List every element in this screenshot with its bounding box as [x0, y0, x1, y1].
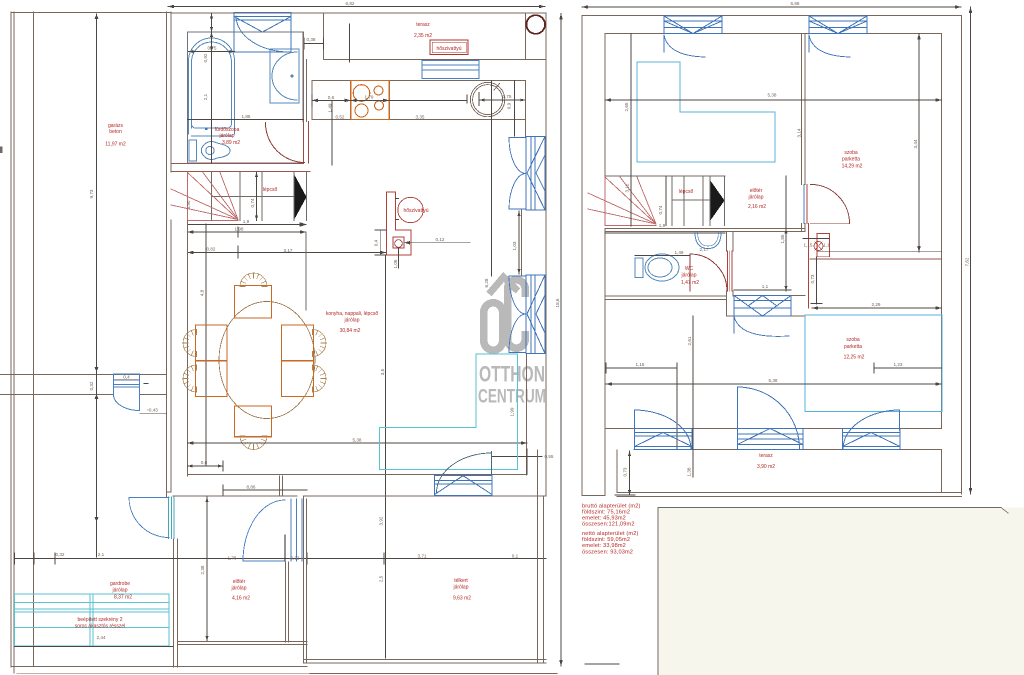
- svg-text:0,38: 0,38: [307, 37, 316, 42]
- svg-text:télkert: télkert: [454, 578, 468, 584]
- svg-text:beton: beton: [109, 129, 122, 135]
- svg-text:1,9: 1,9: [659, 223, 666, 228]
- svg-text:járólap: járólap: [452, 585, 468, 591]
- svg-text:5,38: 5,38: [353, 438, 362, 443]
- svg-text:1,85: 1,85: [242, 114, 251, 119]
- svg-text:11,97 m2: 11,97 m2: [105, 142, 126, 148]
- svg-text:2,17: 2,17: [700, 247, 709, 252]
- svg-text:1,15: 1,15: [636, 362, 645, 367]
- svg-text:1,79: 1,79: [365, 95, 374, 100]
- svg-text:emelet: 33,98m2: emelet: 33,98m2: [582, 543, 626, 549]
- svg-text:gardrobe: gardrobe: [110, 581, 130, 587]
- svg-text:0,55: 0,55: [545, 454, 554, 459]
- svg-text:beépített szekrény 2: beépített szekrény 2: [77, 617, 122, 623]
- svg-text:1,15: 1,15: [804, 243, 813, 248]
- svg-text:3,90 m2: 3,90 m2: [757, 464, 775, 470]
- svg-text:9,63 m2: 9,63 m2: [453, 596, 471, 602]
- svg-text:2,1: 2,1: [98, 552, 105, 557]
- svg-text:parketta: parketta: [844, 344, 862, 350]
- svg-text:0,1: 0,1: [512, 554, 519, 559]
- svg-text:3,89 m2: 3,89 m2: [222, 140, 240, 146]
- svg-text:4,8: 4,8: [200, 289, 205, 296]
- svg-text:1,49: 1,49: [675, 250, 684, 255]
- svg-text:1,99: 1,99: [510, 407, 515, 416]
- svg-text:12,25 m2: 12,25 m2: [844, 355, 865, 361]
- svg-text:18,6: 18,6: [555, 298, 560, 307]
- svg-text:szoba: szoba: [844, 150, 858, 156]
- svg-text:összesen:121,09m2: összesen:121,09m2: [582, 522, 635, 528]
- svg-text:2,35 m2: 2,35 m2: [414, 33, 432, 39]
- svg-text:0,4: 0,4: [374, 239, 379, 246]
- svg-text:járólap: járólap: [343, 318, 359, 324]
- svg-text:2,16 m2: 2,16 m2: [748, 204, 766, 210]
- svg-text:WC: WC: [685, 266, 694, 272]
- svg-text:soros akasztós résszel: soros akasztós résszel: [75, 624, 126, 630]
- svg-text:2,29: 2,29: [872, 302, 881, 307]
- svg-text:3,14: 3,14: [797, 128, 802, 137]
- svg-text:14,29 m2: 14,29 m2: [842, 164, 863, 170]
- svg-text:hőszivattyú: hőszivattyú: [403, 208, 428, 214]
- svg-text:3,71: 3,71: [418, 554, 427, 559]
- svg-text:2,38: 2,38: [200, 565, 205, 574]
- svg-text:járólap: járólap: [111, 588, 127, 594]
- svg-text:előtér: előtér: [750, 188, 763, 194]
- svg-text:0,92: 0,92: [203, 53, 208, 62]
- svg-text:1,38: 1,38: [687, 467, 692, 476]
- svg-text:2,61: 2,61: [687, 336, 692, 345]
- svg-text:1,9: 1,9: [243, 219, 250, 224]
- svg-text:0,9: 0,9: [507, 102, 512, 109]
- svg-text:5,38: 5,38: [769, 378, 778, 383]
- svg-text:1,98: 1,98: [235, 227, 244, 232]
- svg-text:0,32: 0,32: [291, 556, 300, 561]
- svg-text:8,86: 8,86: [247, 485, 256, 490]
- svg-text:3,90: 3,90: [186, 200, 191, 209]
- svg-text:0,12: 0,12: [436, 237, 445, 242]
- svg-text:járólap: járólap: [680, 273, 696, 279]
- svg-text:CENTRUM: CENTRUM: [478, 386, 546, 408]
- svg-text:0,73: 0,73: [623, 467, 628, 476]
- svg-text:0,6: 0,6: [328, 95, 335, 100]
- svg-text:0,32: 0,32: [56, 552, 65, 557]
- svg-text:1,1: 1,1: [823, 243, 830, 248]
- svg-text:7,62: 7,62: [965, 257, 970, 266]
- svg-text:3,44: 3,44: [913, 139, 918, 148]
- svg-text:3,12: 3,12: [625, 183, 630, 192]
- svg-text:30,84 m2: 30,84 m2: [340, 328, 361, 334]
- svg-text:1,47 m2: 1,47 m2: [681, 280, 699, 286]
- svg-text:0,74: 0,74: [250, 198, 255, 207]
- svg-text:0,82: 0,82: [207, 247, 216, 252]
- svg-text:járólap: járólap: [230, 586, 246, 592]
- svg-text:szoba: szoba: [846, 337, 860, 343]
- svg-text:1,1: 1,1: [762, 284, 769, 289]
- svg-text:0,6: 0,6: [201, 460, 208, 465]
- svg-text:1,03: 1,03: [512, 241, 517, 250]
- svg-text:0,4: 0,4: [123, 375, 130, 380]
- svg-text:8,37 m2: 8,37 m2: [114, 595, 132, 601]
- svg-text:3,35: 3,35: [416, 115, 425, 120]
- svg-text:terasz: terasz: [416, 22, 430, 28]
- svg-text:2,65: 2,65: [624, 102, 629, 111]
- svg-text:OTTHON: OTTHON: [479, 362, 545, 387]
- svg-text:~0,43: ~0,43: [146, 408, 158, 413]
- svg-text:előtér: előtér: [233, 579, 246, 585]
- svg-text:1,06: 1,06: [393, 259, 398, 268]
- svg-text:konyha, nappali, lépcső: konyha, nappali, lépcső: [326, 311, 378, 317]
- svg-text:lépcső: lépcső: [679, 189, 694, 195]
- svg-text:5,38: 5,38: [768, 93, 777, 98]
- svg-text:2,5: 2,5: [379, 575, 384, 582]
- svg-text:járólap: járólap: [218, 133, 234, 139]
- svg-text:hőszivattyú: hőszivattyú: [436, 46, 461, 52]
- svg-text:6,88: 6,88: [791, 1, 800, 6]
- svg-text:3,92: 3,92: [379, 516, 384, 525]
- svg-text:0,32: 0,32: [89, 381, 94, 390]
- svg-text:0,74: 0,74: [658, 205, 663, 214]
- svg-text:járólap: járólap: [747, 195, 763, 201]
- svg-text:parketta: parketta: [842, 157, 860, 163]
- svg-text:6,82: 6,82: [346, 1, 355, 6]
- svg-text:1,23: 1,23: [894, 362, 903, 367]
- svg-text:lépcső: lépcső: [263, 187, 278, 193]
- svg-text:összesen: 93,03m2: összesen: 93,03m2: [582, 550, 633, 556]
- svg-text:2,44: 2,44: [97, 635, 106, 640]
- svg-text:1,85: 1,85: [780, 234, 785, 243]
- svg-text:0,75: 0,75: [503, 94, 512, 99]
- svg-text:9,73: 9,73: [89, 189, 94, 198]
- svg-text:0,73: 0,73: [810, 274, 815, 283]
- svg-text:4,16 m2: 4,16 m2: [232, 596, 250, 602]
- svg-text:terasz: terasz: [759, 453, 773, 459]
- svg-text:0,52: 0,52: [336, 115, 345, 120]
- svg-text:3,17: 3,17: [284, 248, 293, 253]
- svg-text:3,5: 3,5: [380, 368, 385, 375]
- svg-text:2,1: 2,1: [203, 93, 208, 100]
- svg-text:1,76: 1,76: [228, 556, 237, 561]
- svg-text:6,28: 6,28: [484, 278, 489, 287]
